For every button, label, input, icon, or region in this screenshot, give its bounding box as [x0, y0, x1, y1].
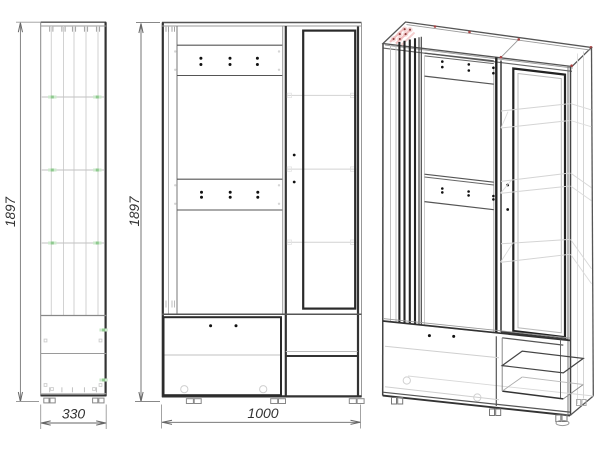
svg-text:1000: 1000: [247, 405, 278, 421]
svg-text:1897: 1897: [3, 196, 18, 227]
svg-text:1897: 1897: [127, 196, 142, 227]
svg-text:330: 330: [62, 406, 86, 422]
